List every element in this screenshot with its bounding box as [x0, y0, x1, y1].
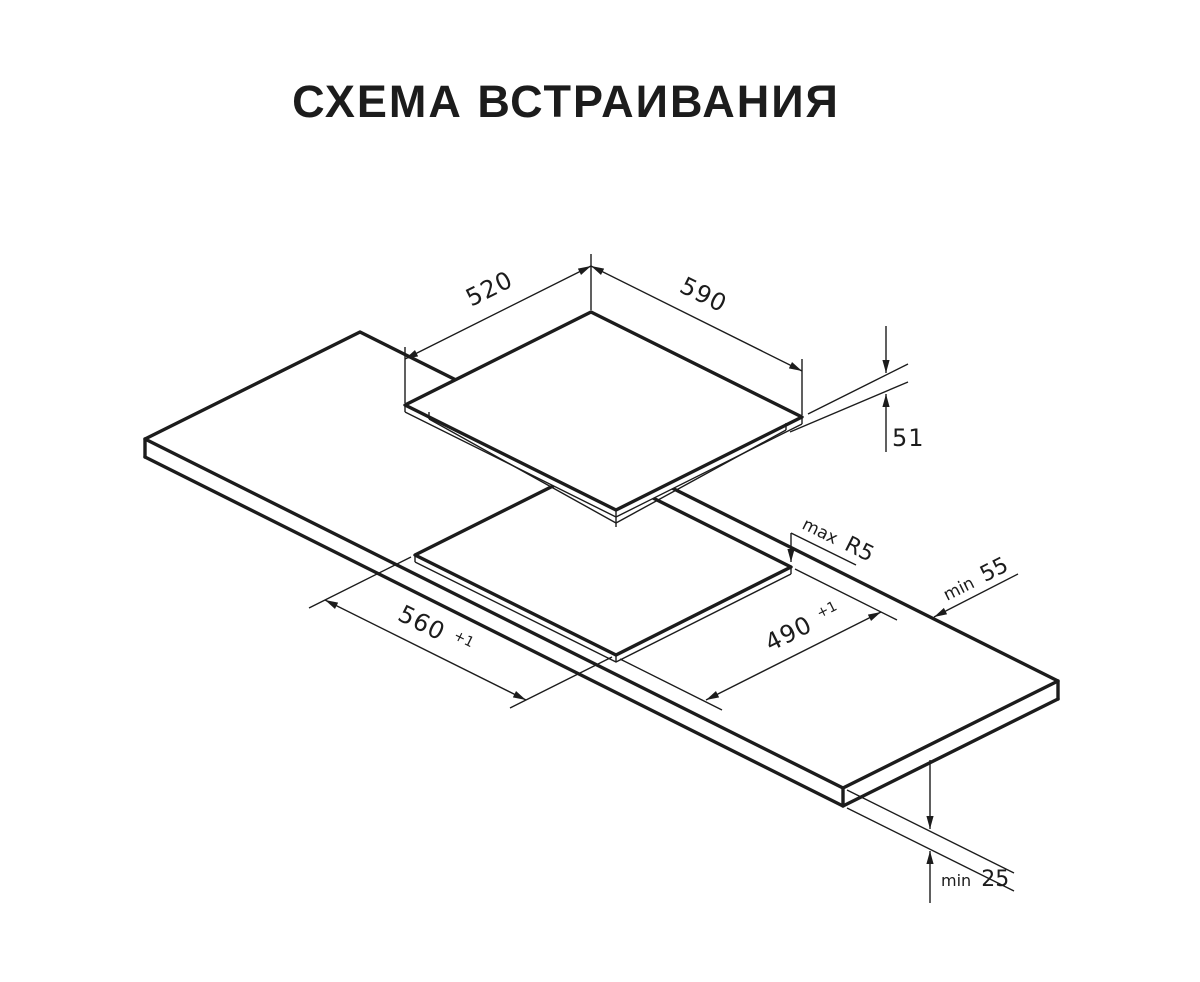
dimension-rear-clearance: min 55: [934, 553, 1018, 617]
dimension-label-min-25: min 25: [941, 867, 1009, 892]
dimension-label-560: 560 +1: [394, 600, 478, 661]
dimension-label-min-55: min 55: [939, 553, 1013, 607]
dimension-label-590: 590: [675, 271, 731, 318]
dimension-label-51: 51: [892, 424, 925, 452]
dimension-label-520: 520: [461, 265, 517, 312]
dimension-hob-height: 51: [790, 326, 925, 452]
extension-line: [790, 382, 908, 432]
installation-diagram-page: СХЕМА ВСТРАИВАНИЯ: [0, 0, 1200, 982]
installation-diagram: 520 590 51 max R5: [0, 0, 1200, 982]
dimension-worktop-thickness: min 25: [847, 760, 1014, 903]
